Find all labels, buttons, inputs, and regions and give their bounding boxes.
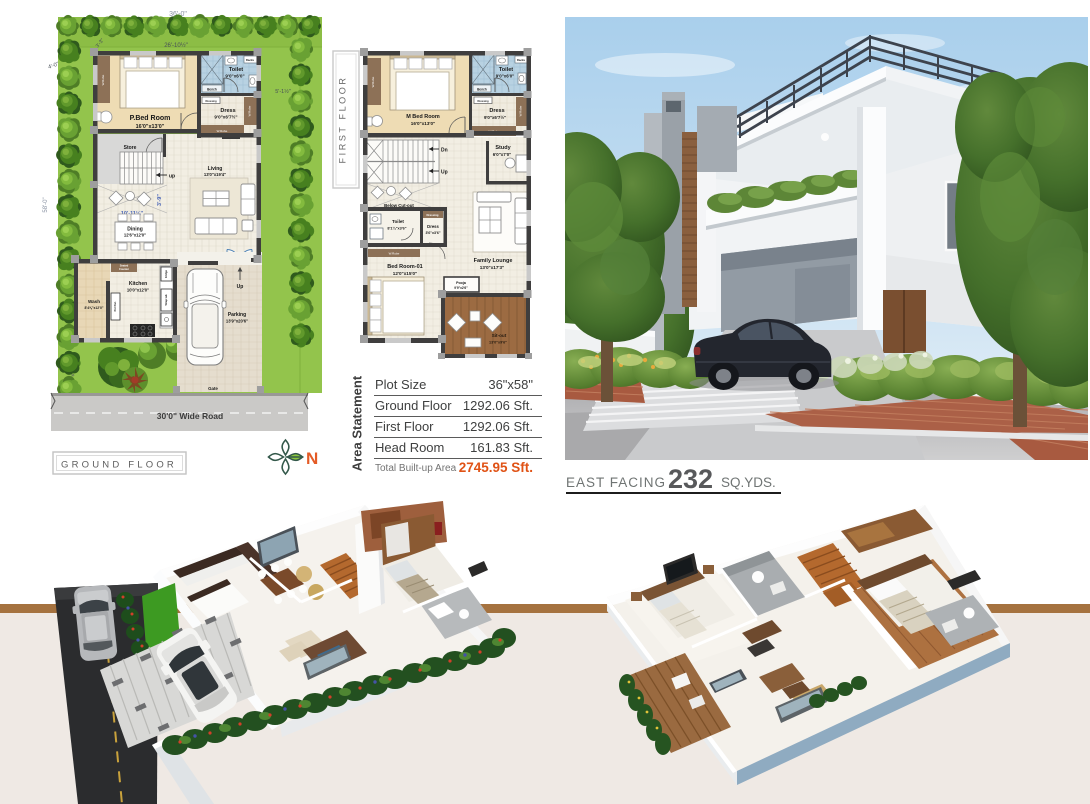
svg-text:Wrap tab: Wrap tab: [164, 294, 168, 305]
svg-text:P.Bed Room: P.Bed Room: [130, 115, 171, 122]
svg-text:Pooja: Pooja: [456, 281, 467, 285]
svg-text:Up: Up: [441, 170, 448, 176]
svg-text:W.Robe: W.Robe: [519, 105, 523, 116]
svg-text:8'4⅝"x12'0": 8'4⅝"x12'0": [85, 306, 104, 310]
svg-text:30'0" Wide Road: 30'0" Wide Road: [157, 411, 223, 421]
svg-text:12'0"x15'0": 12'0"x15'0": [393, 271, 417, 276]
svg-text:N: N: [306, 449, 318, 468]
svg-text:Toilet: Toilet: [229, 67, 243, 73]
svg-text:Dn: Dn: [441, 148, 448, 154]
svg-text:9'9"x2'6": 9'9"x2'6": [454, 286, 468, 290]
svg-text:Dressing: Dressing: [477, 99, 489, 103]
svg-text:58'-0": 58'-0": [43, 197, 49, 212]
svg-text:13'0"x17'3": 13'0"x17'3": [480, 265, 504, 270]
svg-text:Racks: Racks: [517, 58, 526, 62]
svg-text:Dress: Dress: [427, 224, 439, 229]
svg-text:Parking: Parking: [228, 312, 246, 318]
svg-text:W.Robe: W.Robe: [389, 252, 400, 256]
svg-text:Seated: Seated: [120, 264, 129, 268]
svg-text:16'0"x13'0": 16'0"x13'0": [411, 121, 435, 126]
svg-text:26'-10½": 26'-10½": [164, 42, 188, 49]
svg-text:Gate: Gate: [208, 386, 218, 391]
svg-text:13'9"x20'6": 13'9"x20'6": [226, 319, 248, 324]
svg-text:9'0"x6'0": 9'0"x6'0": [225, 74, 244, 79]
svg-text:13'0"x19'4": 13'0"x19'4": [204, 172, 226, 177]
svg-text:Sit-out: Sit-out: [492, 333, 507, 338]
svg-text:W.Robe: W.Robe: [101, 74, 105, 85]
svg-text:Bench: Bench: [207, 88, 217, 92]
svg-text:Wash: Wash: [88, 299, 100, 304]
svg-text:Toilet: Toilet: [392, 219, 404, 224]
svg-text:Dress: Dress: [489, 108, 504, 114]
svg-text:Counter: Counter: [119, 267, 129, 271]
svg-text:M Bed Room: M Bed Room: [406, 114, 440, 120]
svg-text:5'-1½": 5'-1½": [275, 88, 291, 95]
svg-text:9'0"x6'0": 9'0"x6'0": [496, 74, 514, 79]
svg-text:up: up: [169, 174, 175, 180]
svg-text:Dressing: Dressing: [205, 99, 217, 103]
svg-text:Toilet: Toilet: [499, 67, 513, 73]
svg-text:8'1¼"x3'6": 8'1¼"x3'6": [387, 227, 406, 231]
svg-text:W.Robe: W.Robe: [371, 76, 375, 87]
svg-text:Family Lounge: Family Lounge: [474, 258, 513, 264]
svg-text:9'0"x6'7½": 9'0"x6'7½": [484, 115, 506, 120]
svg-text:GROUND FLOOR: GROUND FLOOR: [61, 460, 177, 471]
svg-text:13'0"x9'6": 13'0"x9'6": [489, 341, 507, 345]
svg-text:W.Robe: W.Robe: [248, 105, 252, 116]
svg-text:Up: Up: [237, 284, 244, 290]
svg-text:FIRST FLOOR: FIRST FLOOR: [338, 76, 348, 164]
svg-text:Kitchen: Kitchen: [129, 281, 147, 287]
svg-text:Fridge: Fridge: [164, 269, 168, 277]
svg-text:Bench: Bench: [477, 88, 487, 92]
svg-text:12'6"x12'0": 12'6"x12'0": [124, 233, 146, 238]
svg-text:Store: Store: [124, 145, 137, 151]
svg-text:6'0"x7'0": 6'0"x7'0": [493, 152, 511, 157]
svg-text:10'0"x12'0": 10'0"x12'0": [127, 288, 149, 293]
svg-text:Dressing: Dressing: [427, 213, 439, 217]
svg-text:3'-9": 3'-9": [157, 194, 163, 206]
svg-text:Bed Room-01: Bed Room-01: [387, 264, 422, 270]
svg-text:Dress: Dress: [220, 108, 235, 114]
svg-text:3'6"x3'6": 3'6"x3'6": [425, 231, 440, 235]
svg-text:W.Robe: W.Robe: [217, 129, 228, 133]
svg-text:Pot Pan: Pot Pan: [113, 301, 117, 311]
svg-text:Racks: Racks: [246, 58, 255, 62]
svg-text:9'0"x6'7½": 9'0"x6'7½": [214, 114, 237, 120]
svg-text:Study: Study: [495, 145, 511, 151]
